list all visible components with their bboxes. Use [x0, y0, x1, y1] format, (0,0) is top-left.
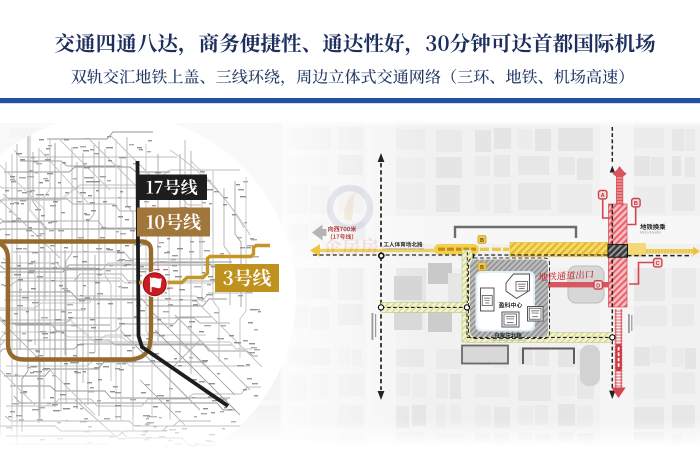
- svg-text:A: A: [601, 193, 605, 199]
- svg-text:C: C: [656, 261, 660, 267]
- svg-text:Baijiazhuang North Road: Baijiazhuang North Road: [491, 338, 525, 342]
- svg-text:Metro transfer: Metro transfer: [640, 230, 662, 234]
- svg-text:B: B: [480, 238, 484, 244]
- svg-text:D: D: [596, 283, 600, 289]
- svg-text:B: B: [480, 265, 484, 271]
- svg-text:Gongrentiyuchang North Road: Gongrentiyuchang North Road: [382, 246, 424, 250]
- svg-text:B: B: [634, 201, 638, 207]
